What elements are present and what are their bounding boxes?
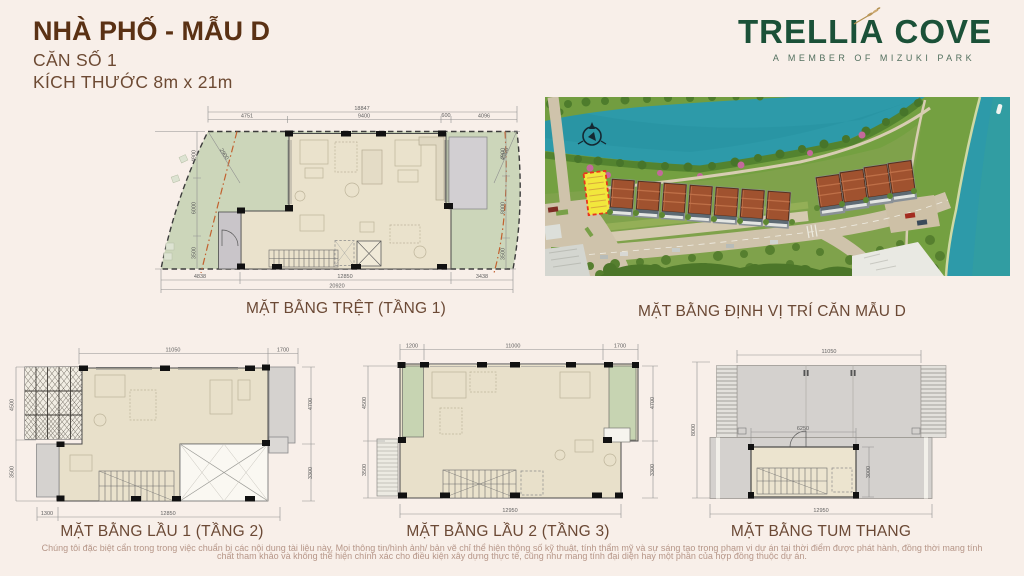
svg-text:4500: 4500 [10, 399, 16, 411]
svg-text:4900: 4900 [192, 150, 198, 162]
svg-text:1700: 1700 [277, 348, 289, 354]
svg-text:6250: 6250 [797, 426, 809, 432]
svg-text:3500: 3500 [501, 248, 507, 260]
svg-text:6000: 6000 [192, 202, 198, 214]
svg-text:1700: 1700 [614, 344, 626, 350]
svg-text:3300: 3300 [308, 467, 314, 479]
svg-text:4700: 4700 [650, 397, 656, 409]
svg-text:12850: 12850 [160, 511, 175, 517]
svg-text:8000: 8000 [691, 424, 697, 436]
svg-text:4751: 4751 [241, 114, 253, 120]
svg-text:600: 600 [441, 113, 450, 119]
svg-text:11050: 11050 [822, 349, 837, 355]
svg-text:18847: 18847 [354, 106, 369, 112]
svg-text:4500: 4500 [362, 397, 368, 409]
svg-text:4838: 4838 [194, 274, 206, 280]
svg-text:3500: 3500 [10, 466, 16, 478]
svg-text:3300: 3300 [650, 464, 656, 476]
svg-text:8000: 8000 [501, 202, 507, 214]
svg-text:1200: 1200 [406, 344, 418, 350]
svg-text:11050: 11050 [166, 348, 181, 354]
svg-text:12950: 12950 [502, 508, 517, 514]
svg-text:9400: 9400 [358, 114, 370, 120]
svg-text:3000: 3000 [866, 466, 872, 478]
svg-text:12950: 12950 [813, 508, 828, 514]
svg-text:20920: 20920 [329, 284, 344, 290]
svg-text:3500: 3500 [192, 247, 198, 259]
svg-text:3438: 3438 [476, 274, 488, 280]
svg-text:1300: 1300 [41, 511, 53, 517]
svg-text:4096: 4096 [478, 114, 490, 120]
svg-text:12850: 12850 [337, 274, 352, 280]
svg-text:4700: 4700 [308, 398, 314, 410]
svg-text:3500: 3500 [362, 464, 368, 476]
svg-text:11000: 11000 [506, 344, 521, 350]
